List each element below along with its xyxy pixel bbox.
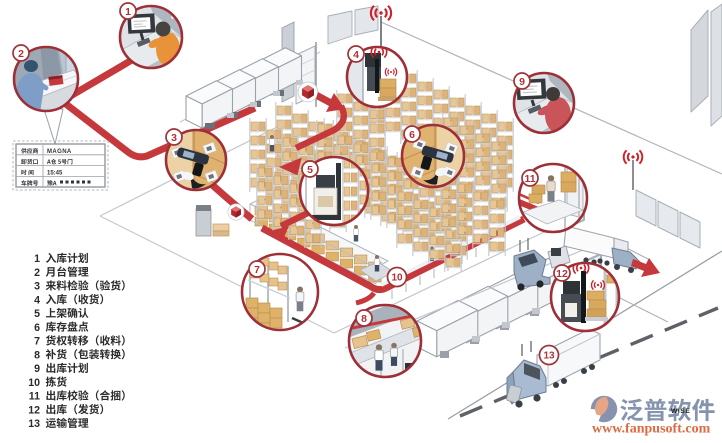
svg-text:5: 5 bbox=[307, 164, 313, 176]
svg-text:13: 13 bbox=[543, 351, 555, 362]
svg-text:1: 1 bbox=[34, 253, 40, 265]
svg-text:12: 12 bbox=[556, 268, 568, 280]
svg-text:WISE: WISE bbox=[671, 408, 690, 415]
svg-text:9: 9 bbox=[34, 363, 40, 375]
svg-text:3: 3 bbox=[171, 132, 177, 144]
svg-text:2: 2 bbox=[34, 267, 40, 279]
svg-text:1: 1 bbox=[125, 6, 131, 18]
svg-text:12: 12 bbox=[28, 404, 40, 416]
svg-text:4: 4 bbox=[34, 294, 40, 306]
svg-text:MAGNA: MAGNA bbox=[47, 149, 72, 155]
svg-text:11: 11 bbox=[524, 173, 535, 185]
svg-text:5: 5 bbox=[34, 308, 40, 320]
svg-text:9: 9 bbox=[519, 76, 525, 88]
svg-text:6: 6 bbox=[34, 322, 40, 334]
svg-text:10: 10 bbox=[28, 377, 40, 389]
svg-text:6: 6 bbox=[409, 129, 415, 141]
svg-text:15:45: 15:45 bbox=[47, 171, 63, 177]
svg-text:www.fanpusoft.com: www.fanpusoft.com bbox=[592, 422, 711, 437]
svg-text:3: 3 bbox=[34, 281, 40, 293]
svg-text:7: 7 bbox=[254, 264, 260, 276]
svg-text:8: 8 bbox=[361, 313, 367, 325]
svg-text:8: 8 bbox=[34, 349, 40, 361]
svg-text:2: 2 bbox=[18, 48, 24, 60]
svg-text:7: 7 bbox=[34, 336, 40, 348]
svg-text:4: 4 bbox=[353, 49, 359, 61]
svg-text:10: 10 bbox=[391, 273, 403, 284]
svg-text:13: 13 bbox=[28, 418, 40, 430]
svg-text:11: 11 bbox=[29, 391, 40, 403]
